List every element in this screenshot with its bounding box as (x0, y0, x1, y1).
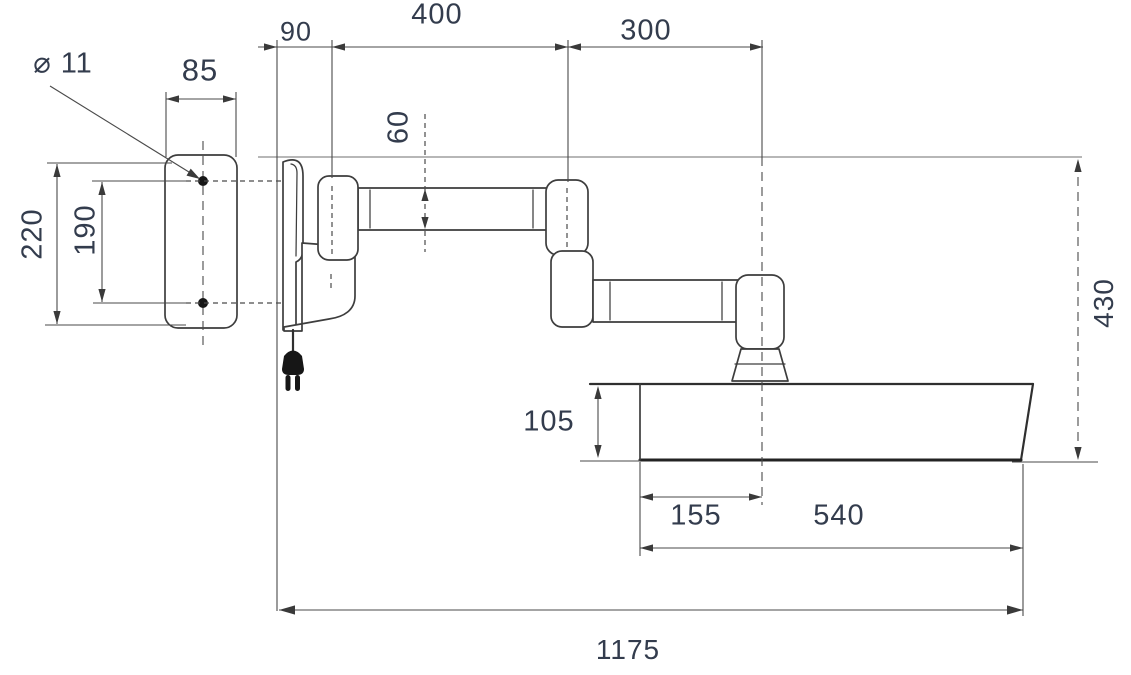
dim-overall-reach: 1175 (596, 636, 660, 664)
elbow-joint-lower (551, 251, 593, 327)
wall-plate-front-view (92, 141, 296, 347)
drawing-canvas (0, 0, 1131, 675)
dim-tray-height: 105 (523, 408, 574, 437)
power-plug-icon (282, 330, 304, 391)
dim-forearm: 300 (620, 17, 671, 46)
wrist-joint (736, 275, 784, 349)
dim-bracket-offset: 90 (280, 19, 312, 46)
shoulder-joint (318, 176, 358, 260)
dim-tray-length: 540 (813, 502, 864, 531)
dim-hole-diameter: ⌀ 11 (33, 50, 93, 79)
dim-tray-inset: 155 (670, 502, 721, 531)
technical-drawing: ⌀ 11 85 90 400 300 60 220 190 430 105 15… (0, 0, 1131, 675)
dimension-lines-bottom (279, 386, 1023, 616)
dim-plate-width: 85 (182, 55, 218, 86)
tray-mount-cone (732, 349, 788, 381)
dim-hole-spacing: 190 (72, 204, 101, 255)
dimension-line-drop (1074, 159, 1081, 460)
dim-tube-height: 60 (385, 110, 414, 144)
dim-plate-height: 220 (19, 208, 48, 259)
tray-side-view (580, 384, 1098, 462)
dim-drop-height: 430 (1090, 278, 1118, 328)
dim-upper-arm: 400 (411, 1, 462, 30)
